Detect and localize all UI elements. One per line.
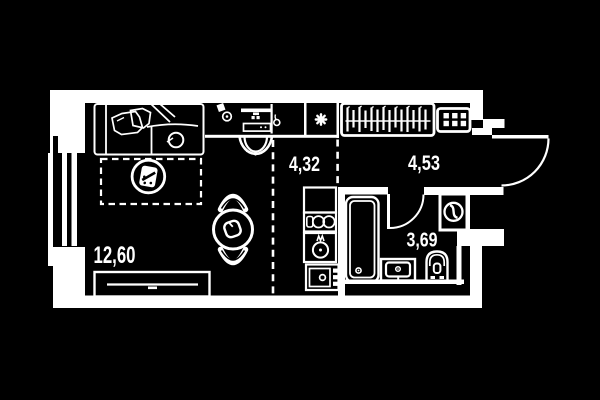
svg-text:3,69: 3,69 bbox=[407, 229, 438, 252]
svg-text:12,60: 12,60 bbox=[94, 242, 136, 269]
svg-text:4,32: 4,32 bbox=[289, 153, 320, 176]
svg-text:4,53: 4,53 bbox=[408, 152, 440, 175]
